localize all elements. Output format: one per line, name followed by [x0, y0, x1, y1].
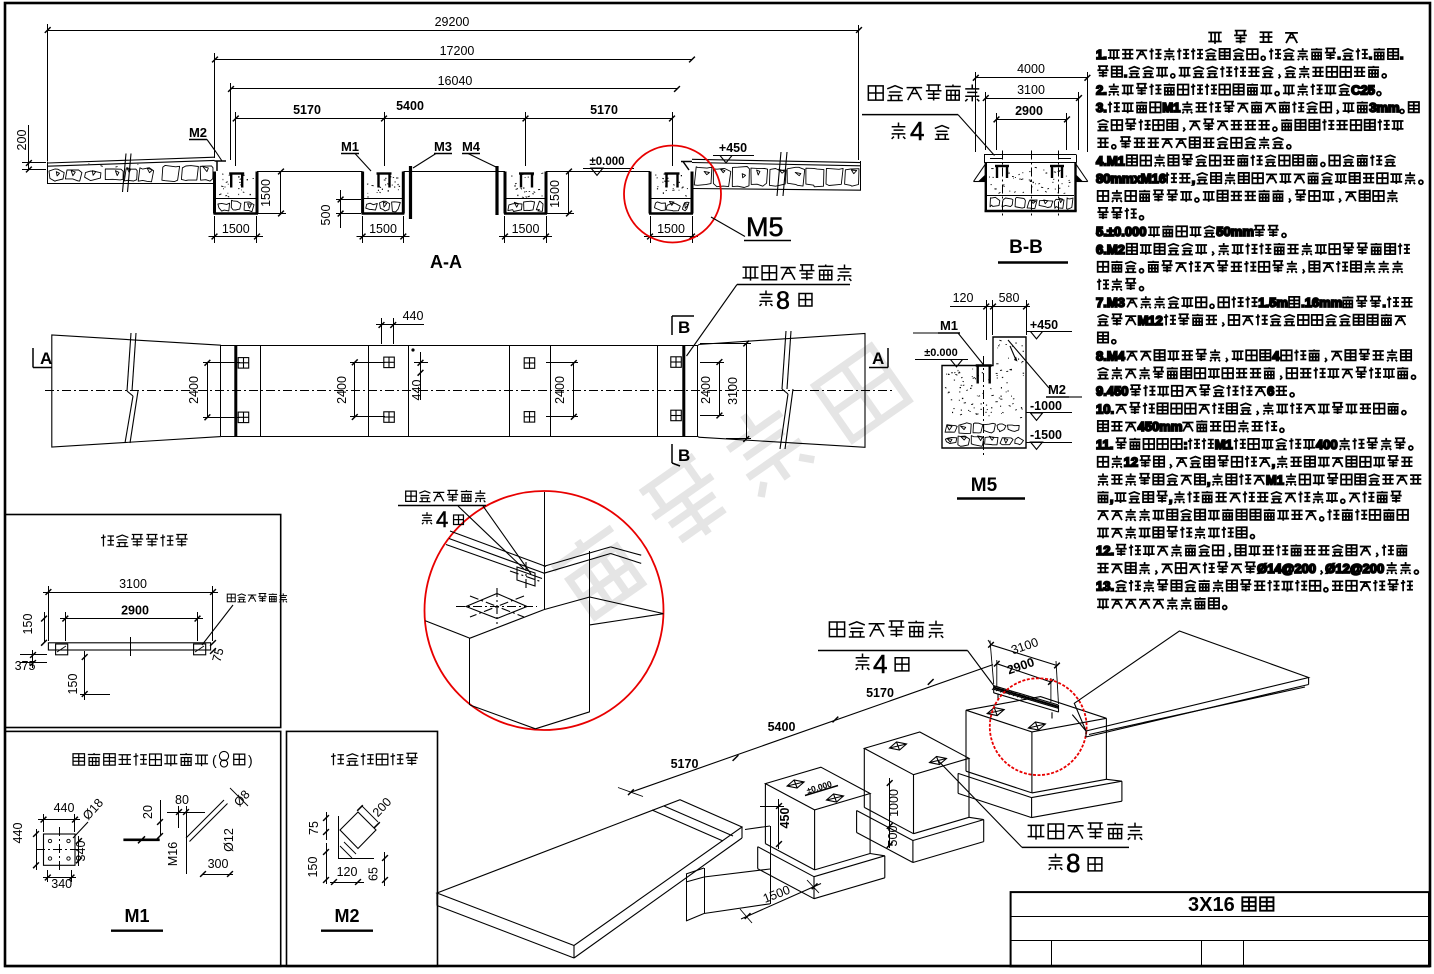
svg-text:3X16: 3X16	[1188, 894, 1235, 916]
svg-text:450: 450	[778, 808, 792, 829]
svg-text:M5: M5	[971, 475, 998, 496]
svg-text:75: 75	[307, 821, 321, 835]
svg-text:+450: +450	[719, 141, 747, 155]
svg-text:A: A	[872, 349, 884, 368]
svg-text:M3: M3	[434, 139, 452, 154]
svg-text:17200: 17200	[440, 44, 475, 58]
svg-text:50mm: 50mm	[1216, 224, 1254, 239]
svg-text:M4: M4	[462, 139, 481, 154]
svg-text:.: .	[1337, 47, 1341, 62]
svg-text:M1: M1	[1162, 100, 1180, 115]
svg-text:M1: M1	[1215, 437, 1233, 452]
svg-text:M1: M1	[1266, 472, 1284, 487]
svg-text:1.5m: 1.5m	[1258, 295, 1288, 310]
svg-text:8: 8	[1066, 848, 1080, 878]
svg-text:5170: 5170	[590, 103, 618, 117]
svg-text:450mm: 450mm	[1138, 419, 1183, 434]
svg-text:5400: 5400	[768, 720, 796, 734]
svg-text:A: A	[40, 349, 52, 368]
svg-text:(: (	[212, 752, 217, 768]
svg-text:2400: 2400	[187, 376, 201, 404]
svg-text:8.M4: 8.M4	[1096, 348, 1126, 363]
svg-text:1500: 1500	[512, 222, 540, 236]
svg-text:2400: 2400	[699, 376, 713, 404]
svg-text:5.±0.000: 5.±0.000	[1096, 224, 1147, 239]
svg-text:4000: 4000	[1017, 62, 1045, 76]
svg-text:2400: 2400	[335, 376, 349, 404]
svg-text:5170: 5170	[671, 757, 699, 771]
svg-text:340: 340	[51, 877, 72, 891]
svg-text:Ø12@200: Ø12@200	[1325, 561, 1384, 576]
svg-text:1500: 1500	[222, 222, 250, 236]
svg-text:,: ,	[1192, 171, 1196, 186]
svg-text:6.M2: 6.M2	[1096, 242, 1125, 257]
svg-text:8: 8	[776, 287, 790, 315]
svg-text:B-B: B-B	[1009, 237, 1043, 258]
svg-text:±0.000: ±0.000	[589, 156, 624, 168]
svg-text:B: B	[678, 318, 690, 337]
svg-text:Ø14@200: Ø14@200	[1257, 561, 1316, 576]
svg-text:M2: M2	[189, 125, 207, 140]
svg-text:C25: C25	[1351, 83, 1375, 98]
svg-text:4: 4	[1272, 348, 1280, 363]
svg-text:,: ,	[1207, 472, 1211, 487]
svg-text:16040: 16040	[438, 74, 473, 88]
svg-text:11.: 11.	[1096, 437, 1113, 452]
svg-text:12.: 12.	[1096, 543, 1114, 558]
svg-text:200: 200	[15, 130, 29, 151]
svg-text:1500: 1500	[657, 222, 685, 236]
svg-text:.: .	[1124, 65, 1128, 80]
svg-text:-1000: -1000	[1030, 399, 1062, 413]
svg-text:3.: 3.	[1096, 100, 1107, 115]
svg-text:12: 12	[1124, 455, 1138, 470]
svg-text:13.: 13.	[1096, 579, 1114, 594]
svg-text:7.M3: 7.M3	[1096, 295, 1125, 310]
svg-text:440: 440	[410, 380, 424, 401]
svg-text:2900: 2900	[1015, 104, 1043, 118]
svg-text:440: 440	[54, 801, 75, 815]
svg-text:65: 65	[367, 867, 381, 881]
svg-text:2900: 2900	[121, 604, 149, 618]
svg-text:3100: 3100	[1017, 83, 1045, 97]
svg-text:1500: 1500	[369, 222, 397, 236]
svg-text:M1: M1	[124, 906, 149, 926]
svg-text:5170: 5170	[293, 103, 321, 117]
svg-text:80: 80	[175, 793, 189, 807]
svg-text:120: 120	[953, 291, 974, 305]
svg-text:5400: 5400	[396, 99, 424, 113]
svg-text:.: .	[1382, 295, 1386, 310]
svg-text:5170: 5170	[866, 686, 894, 700]
svg-text:,: ,	[1272, 455, 1276, 470]
svg-text:300: 300	[208, 857, 229, 871]
svg-text:4: 4	[436, 507, 448, 532]
svg-text:4.M1: 4.M1	[1096, 153, 1125, 168]
svg-text:1000: 1000	[887, 789, 901, 817]
svg-text:,: ,	[1110, 490, 1114, 505]
svg-text:): )	[248, 752, 253, 768]
svg-text:1500: 1500	[548, 180, 562, 208]
svg-text:.: .	[1400, 47, 1404, 62]
svg-text:500: 500	[319, 205, 333, 226]
svg-text:120: 120	[337, 865, 358, 879]
svg-text:1.: 1.	[1096, 47, 1107, 62]
svg-text:,: ,	[1169, 490, 1173, 505]
svg-text:10.: 10.	[1096, 401, 1114, 416]
svg-text:6: 6	[1267, 384, 1274, 399]
svg-text:3100: 3100	[119, 577, 147, 591]
svg-text:150: 150	[66, 674, 80, 695]
svg-text:A-A: A-A	[430, 252, 462, 272]
svg-text:M5: M5	[746, 212, 784, 242]
svg-text:3mm: 3mm	[1369, 100, 1399, 115]
svg-text:29200: 29200	[435, 15, 470, 29]
svg-text:4: 4	[873, 649, 887, 679]
svg-text:1500: 1500	[259, 179, 273, 207]
svg-text:20: 20	[141, 805, 155, 819]
svg-text:M16: M16	[166, 842, 180, 866]
svg-text:±0.000: ±0.000	[924, 347, 958, 359]
svg-text:M1: M1	[940, 318, 958, 333]
svg-text:80mmxM16: 80mmxM16	[1096, 171, 1166, 186]
svg-text:150: 150	[21, 614, 35, 635]
svg-text:M1: M1	[341, 139, 359, 154]
svg-text:M2: M2	[334, 906, 359, 926]
svg-text:+450: +450	[1030, 318, 1058, 332]
svg-text:400: 400	[1316, 437, 1338, 452]
svg-text:500: 500	[886, 826, 900, 847]
svg-text:.: .	[1369, 47, 1373, 62]
svg-text:B: B	[678, 446, 690, 465]
svg-text:3100: 3100	[726, 377, 740, 405]
svg-text:440: 440	[11, 823, 25, 844]
svg-text:580: 580	[999, 291, 1020, 305]
svg-text:M12: M12	[1138, 313, 1163, 328]
svg-text:440: 440	[403, 309, 424, 323]
svg-text:Ø12: Ø12	[222, 828, 236, 852]
svg-text:M2: M2	[1048, 382, 1066, 397]
svg-text:2400: 2400	[553, 376, 567, 404]
svg-text:4: 4	[910, 116, 924, 146]
svg-text:150: 150	[306, 857, 320, 878]
svg-text::: :	[1183, 437, 1187, 452]
svg-text:-1500: -1500	[1030, 428, 1062, 442]
svg-text:.16mm: .16mm	[1301, 295, 1342, 310]
svg-text:2.: 2.	[1096, 83, 1107, 98]
svg-text:9.450: 9.450	[1096, 384, 1129, 399]
